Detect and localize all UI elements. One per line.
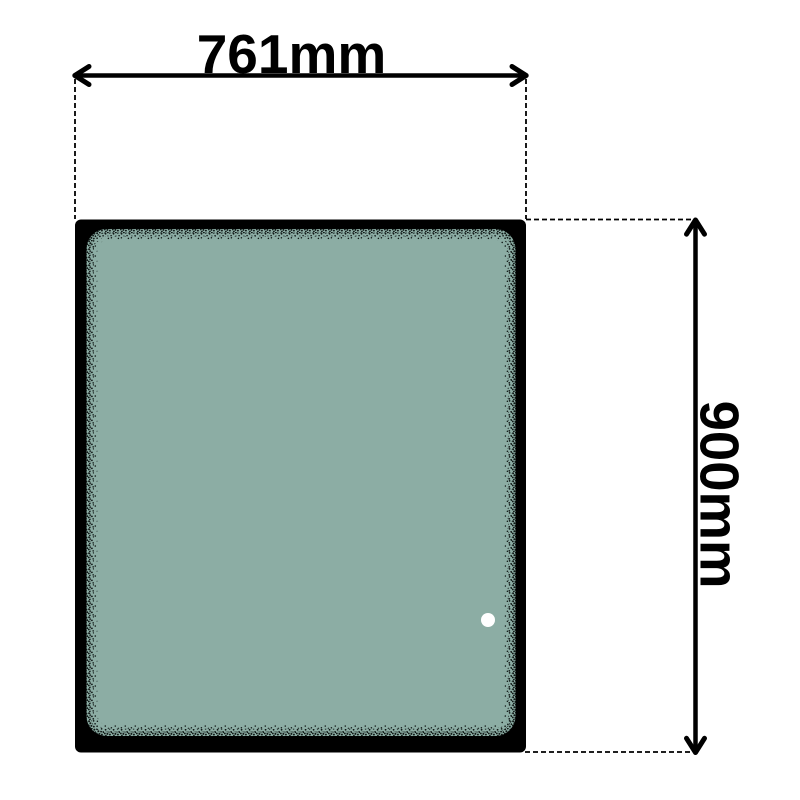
svg-text:761mm: 761mm [197, 23, 387, 85]
svg-text:900mm: 900mm [689, 401, 750, 589]
